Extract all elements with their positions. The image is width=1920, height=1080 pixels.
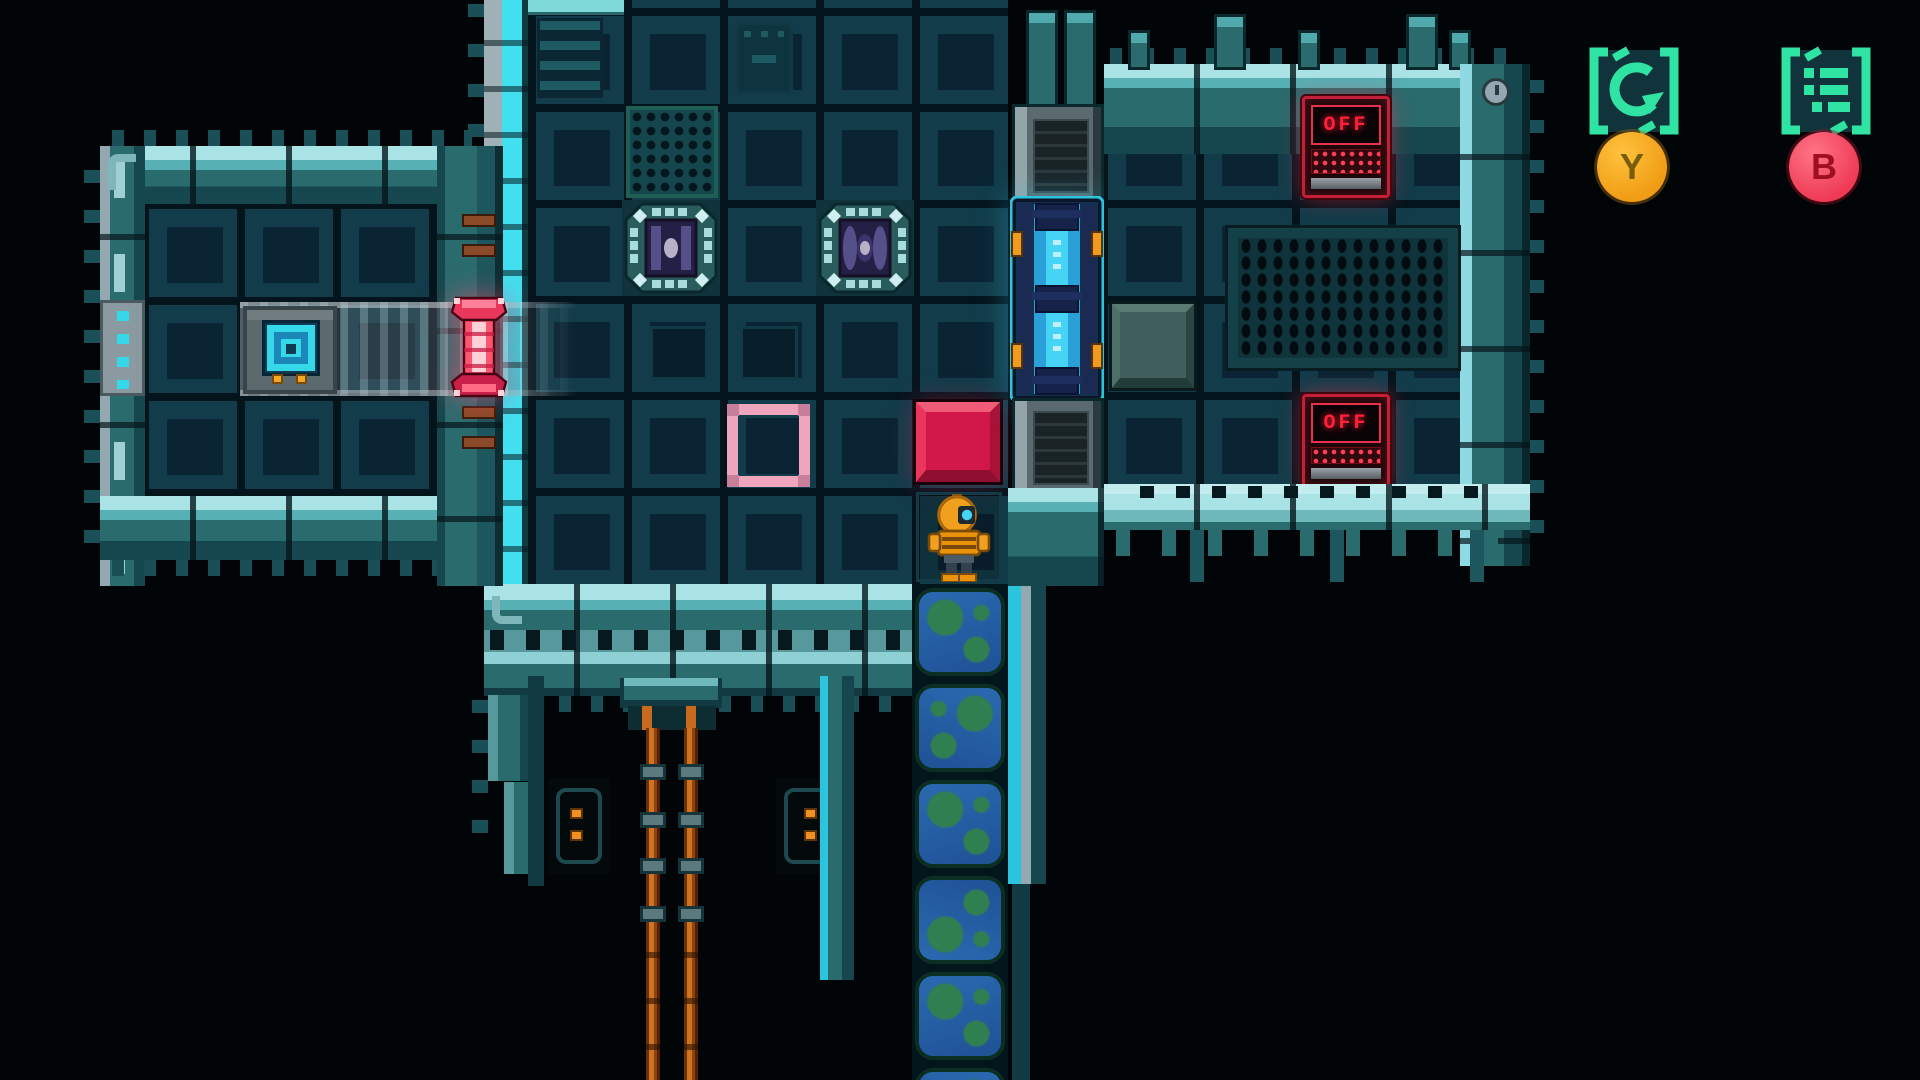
player-robot xyxy=(922,494,998,582)
machine-bottom xyxy=(1012,398,1104,492)
water-tile xyxy=(915,684,1005,772)
game-viewport: OFF OFF xyxy=(0,0,1920,1080)
shaft-top-stub xyxy=(1064,10,1096,108)
vent-grate xyxy=(1228,228,1458,368)
cable-bracket xyxy=(620,678,722,708)
off-switch-bottom: OFF xyxy=(1302,394,1390,488)
left-room-top-teeth xyxy=(112,130,472,146)
flank-wall-right xyxy=(820,676,854,980)
off-switch-label: OFF xyxy=(1311,403,1381,443)
target-corner xyxy=(727,475,739,487)
restart-button[interactable] xyxy=(1584,44,1684,138)
off-switch-keypad xyxy=(1311,447,1381,464)
chest-foot xyxy=(272,374,283,384)
junction-bar xyxy=(462,406,496,419)
off-switch-top: OFF xyxy=(1302,96,1390,198)
socket-device-left xyxy=(548,778,610,874)
cable-coupler xyxy=(678,906,704,922)
gamepad-y-label: Y xyxy=(1620,146,1644,188)
lower-left-teeth xyxy=(472,700,488,860)
corner-pipe-glyph xyxy=(108,154,136,190)
socket-light xyxy=(570,808,583,819)
junction-bar xyxy=(462,214,496,227)
right-bottom-long-stubs xyxy=(1120,530,1516,582)
water-tile xyxy=(915,972,1005,1060)
cable-coupler xyxy=(640,906,666,922)
gamepad-b-label: B xyxy=(1811,146,1837,188)
cable-coupler xyxy=(678,764,704,780)
cable-coupler xyxy=(640,812,666,828)
chest-foot xyxy=(296,374,307,384)
off-switch-label: OFF xyxy=(1311,105,1381,145)
bracket-tile xyxy=(735,22,793,94)
energy-conduit xyxy=(1010,196,1104,402)
shaft-bottom-wall xyxy=(1008,488,1104,586)
dark-panel-left xyxy=(650,326,708,380)
cable-coupler xyxy=(640,764,666,780)
water-tile xyxy=(915,1068,1005,1080)
middle-bottom-wall-teeth xyxy=(490,630,906,650)
gauge-needle xyxy=(1495,85,1499,95)
target-corner xyxy=(798,475,810,487)
machine-face xyxy=(1033,411,1089,485)
left-room-outer-teeth xyxy=(84,170,100,570)
socket-light xyxy=(804,808,817,819)
junction-bar xyxy=(462,436,496,449)
menu-button[interactable] xyxy=(1776,44,1876,138)
left-room-bottom-wall xyxy=(100,496,484,560)
machine-face xyxy=(1033,119,1089,193)
water-right-wall-strip xyxy=(1008,584,1046,884)
gamepad-y-button[interactable]: Y xyxy=(1597,132,1667,202)
right-bottom-wall-teeth xyxy=(1140,486,1500,498)
lower-left-wall-seg xyxy=(488,695,530,781)
water-column xyxy=(912,584,1008,1080)
vault-door-right xyxy=(816,200,914,296)
conveyor-end-panel xyxy=(100,300,145,396)
cable-head xyxy=(628,706,716,730)
grey-block xyxy=(1112,304,1194,388)
gamepad-b-button[interactable]: B xyxy=(1789,132,1859,202)
water-right-wall-thin xyxy=(1012,884,1030,1080)
red-push-block xyxy=(916,402,1000,482)
shaft-top-stub xyxy=(1026,10,1058,108)
pink-target-outline xyxy=(727,404,810,487)
pipe-stub xyxy=(1128,30,1150,70)
off-switch-keypad xyxy=(1311,149,1381,174)
target-corner xyxy=(798,404,810,416)
pink-spool xyxy=(450,296,508,398)
conveyor-end-lights xyxy=(117,311,129,389)
pipe-stub xyxy=(1214,14,1246,70)
right-room-right-teeth xyxy=(1530,80,1544,540)
dotted-grate-tile xyxy=(626,106,718,198)
gauge-glyph xyxy=(1482,78,1510,106)
bracket-tile-mark xyxy=(752,55,776,63)
wall-edge-top xyxy=(528,0,624,15)
corner-pipe-glyph xyxy=(492,596,522,624)
socket-frame xyxy=(556,788,602,864)
junction-pipes xyxy=(462,210,496,270)
socket-light xyxy=(570,830,583,841)
target-corner xyxy=(727,404,739,416)
off-switch-base xyxy=(1311,178,1381,189)
cable-coupler xyxy=(678,858,704,874)
dark-panel-right xyxy=(740,326,798,380)
junction-bar xyxy=(462,244,496,257)
water-tile xyxy=(915,588,1005,676)
off-switch-base xyxy=(1311,468,1381,479)
machine-top xyxy=(1012,104,1104,200)
pipe-stub xyxy=(1298,30,1320,70)
chest-core xyxy=(286,344,296,354)
left-room-top-wall xyxy=(100,146,484,204)
water-tile xyxy=(915,780,1005,868)
cyan-chest xyxy=(262,320,320,376)
vault-door-left xyxy=(622,200,720,296)
hanging-cable xyxy=(646,728,660,1080)
junction-pipes xyxy=(462,402,496,462)
socket-light xyxy=(804,830,817,841)
cable-coupler xyxy=(640,858,666,874)
cable-coupler xyxy=(678,812,704,828)
flank-strip-left xyxy=(528,676,544,886)
pipe-stub xyxy=(1406,14,1438,70)
left-room-bottom-teeth xyxy=(112,560,472,576)
bracket-tile-rivets xyxy=(744,31,784,37)
vent-slat-tile xyxy=(537,18,603,98)
hanging-cable xyxy=(684,728,698,1080)
water-tile xyxy=(915,876,1005,964)
